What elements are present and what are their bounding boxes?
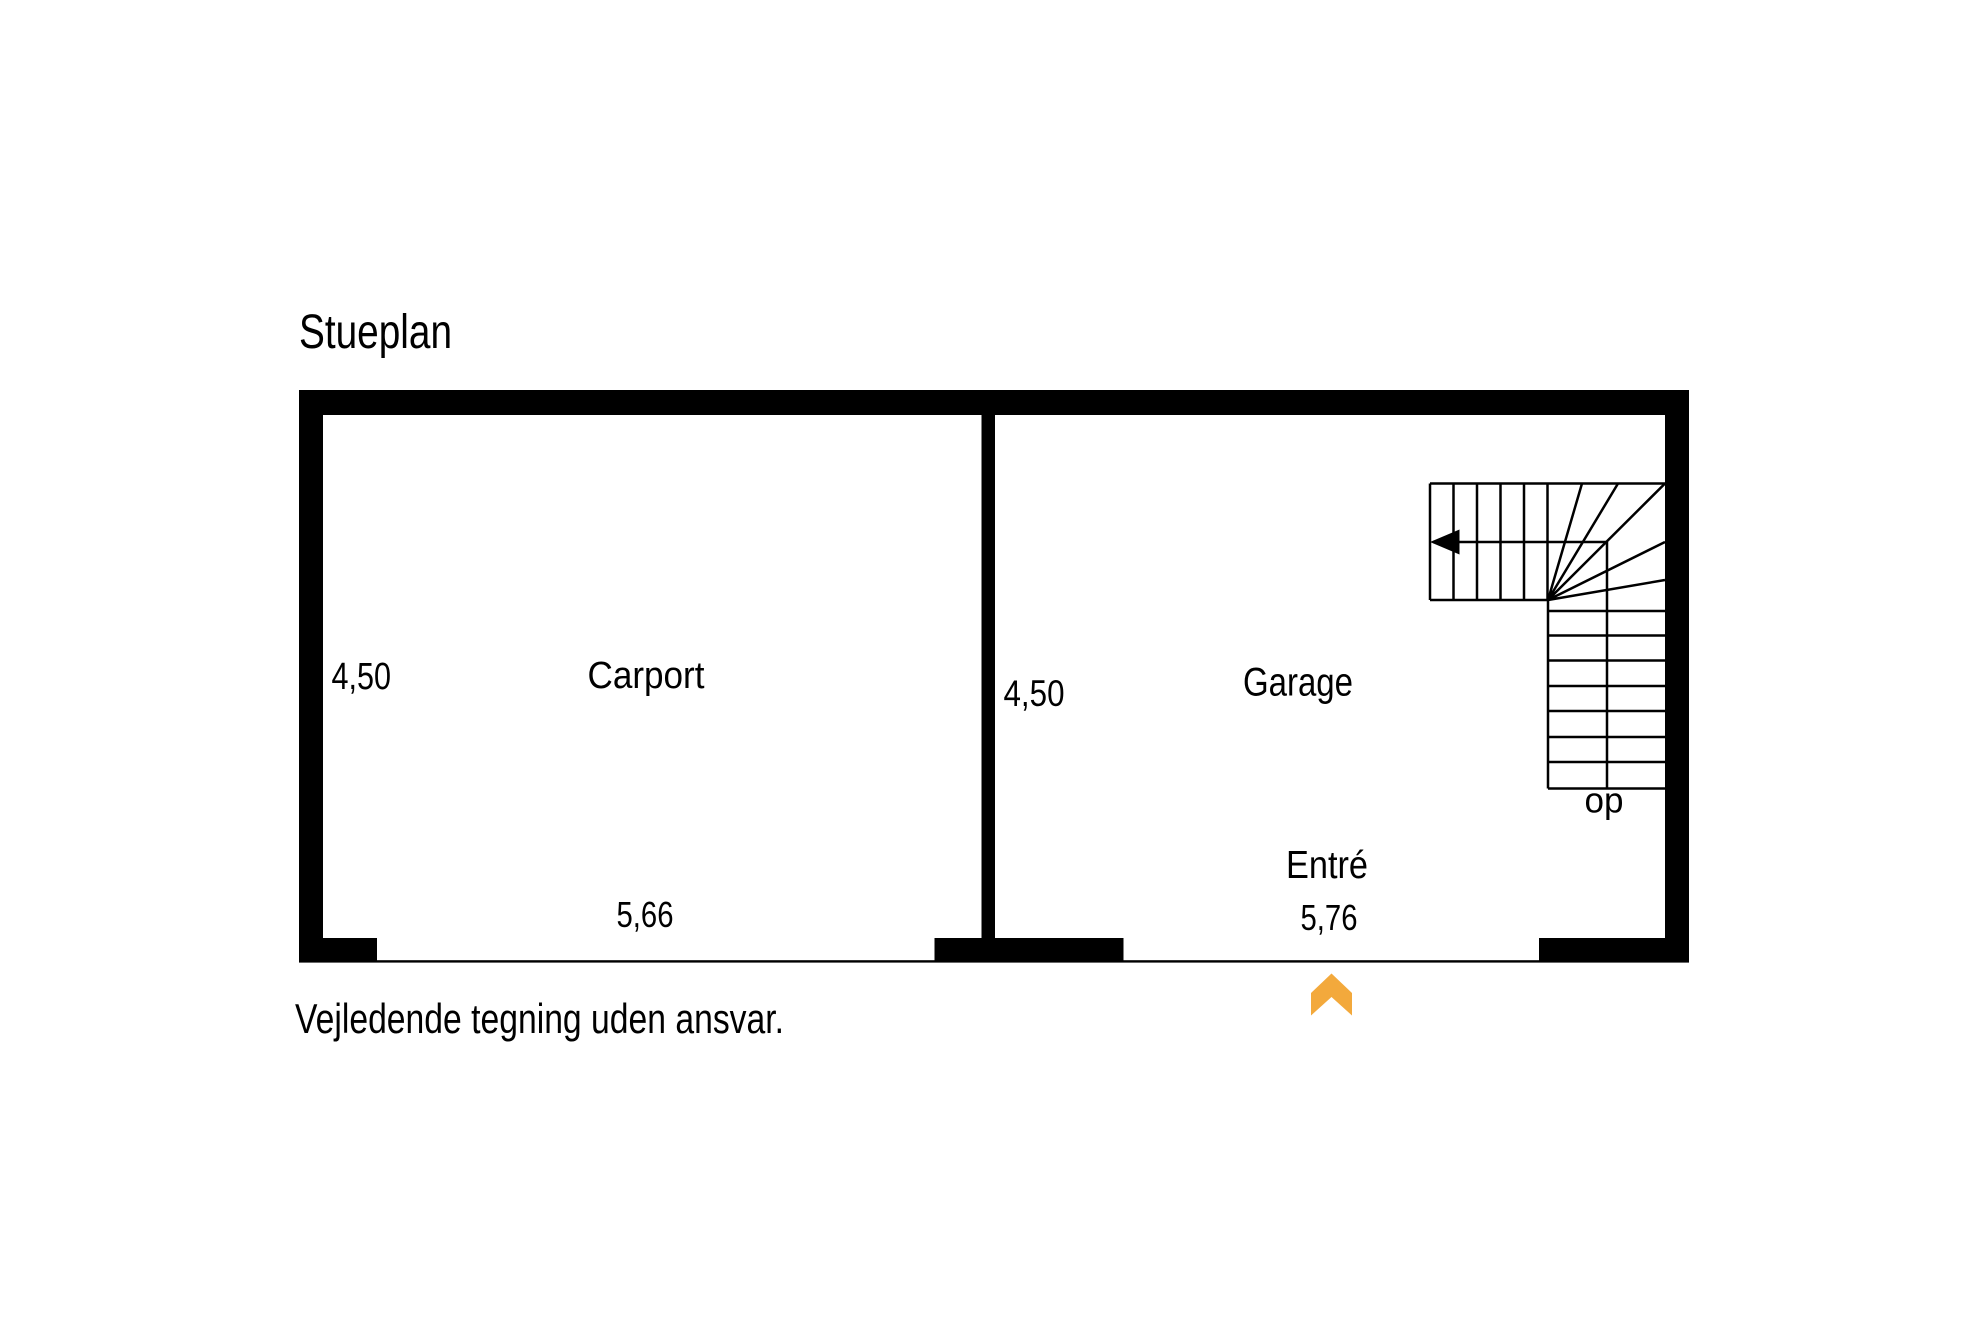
svg-text:Stueplan: Stueplan [299,305,452,359]
svg-text:Carport: Carport [588,655,705,697]
svg-text:Garage: Garage [1243,661,1353,705]
svg-text:op: op [1585,780,1624,821]
svg-text:Entré: Entré [1286,844,1368,887]
svg-text:5,66: 5,66 [617,894,674,935]
svg-text:Vejledende tegning uden ansvar: Vejledende tegning uden ansvar. [295,995,784,1042]
svg-text:5,76: 5,76 [1301,897,1358,938]
svg-text:4,50: 4,50 [1004,673,1065,714]
svg-text:4,50: 4,50 [332,656,392,698]
